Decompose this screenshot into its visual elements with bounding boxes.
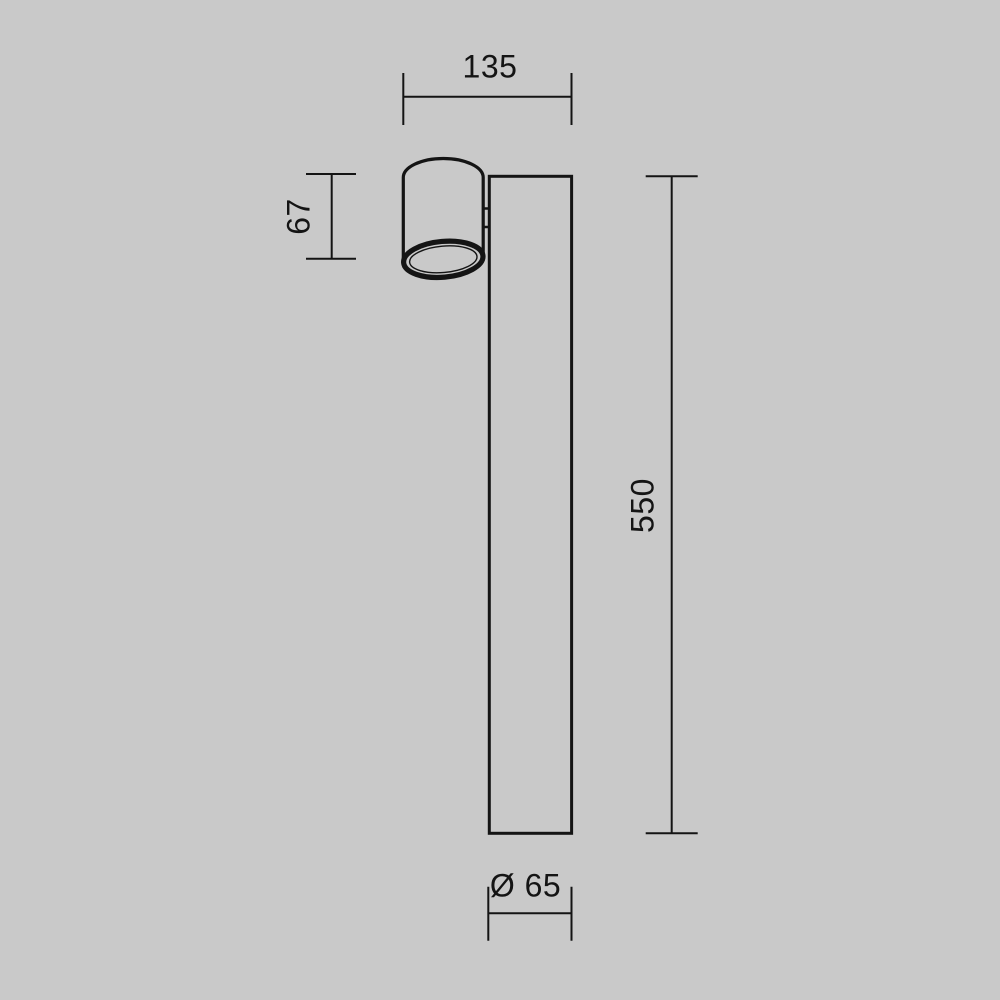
dimension-post-height: 550	[625, 176, 698, 833]
dimension-base-diameter: Ø 65	[488, 868, 571, 941]
lamp-lens	[402, 238, 484, 281]
lamp-outline	[402, 158, 572, 833]
dim-label-overall-width: 135	[463, 49, 518, 85]
dim-label-head-height: 67	[281, 198, 317, 235]
dimension-head-height: 67	[281, 174, 357, 259]
drawing-canvas: 135 67 550 Ø 65	[0, 0, 1000, 1000]
lamp-lens-outer-ring	[402, 238, 484, 281]
dim-label-base-diameter: Ø 65	[490, 868, 561, 904]
dimension-overall-width: 135	[403, 49, 571, 126]
dim-label-post-height: 550	[625, 478, 661, 533]
lamp-post	[489, 176, 571, 833]
technical-drawing: 135 67 550 Ø 65	[0, 0, 1000, 1000]
